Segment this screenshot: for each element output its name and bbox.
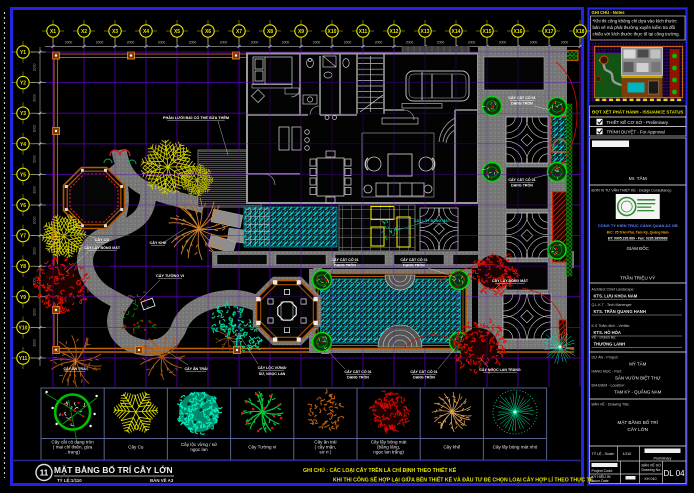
svg-text:Issue Date: Issue Date — [592, 479, 609, 483]
svg-text:CÂY TƯỜNG VI: CÂY TƯỜNG VI — [156, 273, 184, 278]
svg-text:KTS. TRẦN QUANG HANH: KTS. TRẦN QUANG HANH — [594, 309, 646, 314]
svg-text:GIÁM ĐỐC: GIÁM ĐỐC — [627, 246, 649, 251]
svg-text:2000: 2000 — [33, 308, 37, 316]
svg-text:X14: X14 — [452, 29, 461, 35]
svg-text:X15: X15 — [483, 29, 492, 35]
svg-text:Cây Tường vi: Cây Tường vi — [248, 445, 276, 450]
svg-text:CÂY LẤY BÓNG MÁT: CÂY LẤY BÓNG MÁT — [414, 218, 451, 223]
svg-text:2000: 2000 — [499, 41, 507, 45]
svg-text:(bằng lăng,: (bằng lăng, — [377, 444, 400, 450]
svg-text:ngọc lan: ngọc lan — [190, 447, 208, 452]
svg-text:X1: X1 — [50, 29, 56, 35]
svg-text:X8: X8 — [267, 29, 273, 35]
svg-text:TRÌNH DUYỆT - For Approval: TRÌNH DUYỆT - For Approval — [607, 130, 665, 135]
svg-text:2000: 2000 — [33, 94, 37, 102]
svg-text:TRẦN TRIỆU VỸ: TRẦN TRIỆU VỸ — [620, 274, 655, 281]
svg-text:, trang): , trang) — [65, 450, 80, 455]
svg-text:Y4: Y4 — [20, 142, 26, 148]
svg-text:SÂN VƯỜN BIỆT THỰ: SÂN VƯỜN BIỆT THỰ — [615, 376, 661, 381]
svg-text:Y9: Y9 — [20, 295, 26, 301]
svg-text:2000: 2000 — [33, 247, 37, 255]
svg-text:2000: 2000 — [158, 41, 166, 45]
svg-text:2000: 2000 — [344, 41, 352, 45]
svg-text:CÂY LẤY BÓNG MÁT: CÂY LẤY BÓNG MÁT — [492, 278, 529, 283]
svg-text:X11: X11 — [359, 29, 368, 35]
svg-text:VẼ - Drawn By:: VẼ - Drawn By: — [592, 335, 617, 340]
svg-text:CÂY CẮT CỎ 01: CÂY CẮT CỎ 01 — [400, 257, 427, 262]
svg-text:HẠNG MỤC - Part:: HẠNG MỤC - Part: — [592, 370, 622, 374]
svg-text:Cây khế: Cây khế — [443, 445, 460, 450]
svg-text:X18: X18 — [576, 29, 585, 35]
svg-text:X7: X7 — [236, 29, 242, 35]
svg-text:KHI THI CÔNG SẼ HỢP LẠI GIỮA B: KHI THI CÔNG SẼ HỢP LẠI GIỮA BÊN THIẾT K… — [333, 476, 594, 484]
svg-text:THƯƠNG LANH: THƯƠNG LANH — [594, 342, 626, 347]
svg-text:CÂY ĂN TRÁI: CÂY ĂN TRÁI — [184, 366, 207, 371]
svg-text:X2: X2 — [81, 29, 87, 35]
svg-text:2000: 2000 — [96, 41, 104, 45]
svg-text:2000: 2000 — [33, 186, 37, 194]
svg-text:TỶ LỆ - Scale:: TỶ LỆ - Scale: — [592, 451, 615, 456]
svg-text:DẠNG TRÒN: DẠNG TRÒN — [511, 183, 533, 188]
svg-text:ĐỢT XÉT PHÁT HÀNH - ISSUANCE S: ĐỢT XÉT PHÁT HÀNH - ISSUANCE STATUS — [592, 110, 683, 115]
svg-text:Y1: Y1 — [20, 50, 26, 56]
svg-text:2000: 2000 — [33, 216, 37, 224]
svg-text:2000: 2000 — [437, 41, 445, 45]
svg-text:Cây cắt cỏ dạng tròn: Cây cắt cỏ dạng tròn — [51, 438, 94, 444]
svg-text:CÂY CỌ: CÂY CỌ — [95, 237, 110, 242]
svg-text:GHI CHÚ - Notes: GHI CHÚ - Notes — [592, 10, 626, 15]
svg-text:Architect Chief Landscape:: Architect Chief Landscape: — [592, 288, 635, 292]
svg-text:2000: 2000 — [33, 155, 37, 163]
svg-text:2000: 2000 — [189, 41, 197, 45]
svg-text:X3: X3 — [112, 29, 118, 35]
svg-text:ĐT: 0905.235.689 - Fax: 0235.3: ĐT: 0905.235.689 - Fax: 0235.3859689 — [608, 237, 668, 241]
svg-text:DẠNG TRÒN: DẠNG TRÒN — [334, 263, 356, 268]
svg-text:X6: X6 — [205, 29, 211, 35]
svg-text:Project Code:: Project Code: — [592, 469, 614, 473]
svg-text:SỨ, NGỌC LAN: SỨ, NGỌC LAN — [259, 371, 286, 376]
svg-text:KTS. LƯU KHOA NAM: KTS. LƯU KHOA NAM — [594, 294, 638, 299]
svg-text:2000: 2000 — [220, 41, 228, 45]
svg-text:CÂY LỘC VỪNG/: CÂY LỘC VỪNG/ — [258, 365, 287, 370]
svg-text:MẶT BẰNG BỐ TRÍ CÂY LỚN: MẶT BẰNG BỐ TRÍ CÂY LỚN — [54, 464, 173, 475]
svg-text:Mr. TÂM: Mr. TÂM — [629, 175, 647, 182]
svg-text:X10: X10 — [328, 29, 337, 35]
svg-text:Cây lấy bóng mát nhỏ: Cây lấy bóng mát nhỏ — [493, 444, 538, 450]
svg-text:BẢN VẼ SỐ: BẢN VẼ SỐ — [642, 463, 662, 468]
svg-text:2000: 2000 — [406, 41, 414, 45]
svg-text:DẠNG TRÒN: DẠNG TRÒN — [347, 375, 369, 380]
svg-text:KTS. HỒ HÒA: KTS. HỒ HÒA — [594, 330, 621, 335]
svg-text:Đ/C: 25 Trần Phú, Tam Kỳ, Quản: Đ/C: 25 Trần Phú, Tam Kỳ, Quảng Nam — [607, 231, 669, 235]
svg-text:chiếu với kích thước thực tế t: chiếu với kích thước thực tế tại công tr… — [593, 32, 680, 37]
svg-text:2000: 2000 — [561, 41, 569, 45]
svg-text:KH 010: KH 010 — [645, 477, 657, 481]
svg-text:Cây Cọ: Cây Cọ — [128, 445, 144, 450]
svg-text:Q.L.K.T - Tech Manenger: Q.L.K.T - Tech Manenger — [592, 303, 633, 307]
svg-text:X4: X4 — [143, 29, 149, 35]
svg-text:DẠNG TRÒN: DẠNG TRÒN — [511, 101, 533, 106]
svg-text:BẢN VẼ - Drawing Title:: BẢN VẼ - Drawing Title: — [592, 402, 630, 407]
svg-text:2000: 2000 — [33, 63, 37, 71]
svg-text:2000: 2000 — [127, 41, 135, 45]
svg-text:TAM KỲ - QUẢNG NAM: TAM KỲ - QUẢNG NAM — [614, 390, 661, 395]
svg-text:X16: X16 — [514, 29, 523, 35]
svg-text:2000: 2000 — [65, 41, 73, 45]
svg-text:Y6: Y6 — [20, 203, 26, 209]
svg-text:PHẦN LƯỚI B40 CÓ THỂ SỬA THÊM: PHẦN LƯỚI B40 CÓ THỂ SỬA THÊM — [163, 115, 229, 120]
svg-text:*Khi thi công không chỉ dựa và: *Khi thi công không chỉ dựa vào kích thư… — [593, 19, 678, 24]
svg-text:DL 04: DL 04 — [663, 469, 685, 478]
svg-text:X13: X13 — [421, 29, 430, 35]
svg-text:THIẾT KẾ CƠ SỞ - Preliminary: THIẾT KẾ CƠ SỞ - Preliminary — [607, 120, 669, 125]
svg-text:X9: X9 — [298, 29, 304, 35]
svg-text:Preliminary: Preliminary — [654, 457, 672, 461]
svg-text:ĐƠN VỊ TƯ VẤN THIẾT KẾ - Desig: ĐƠN VỊ TƯ VẤN THIẾT KẾ - Design Consulta… — [592, 188, 672, 193]
svg-text:Drawing No.: Drawing No. — [642, 468, 662, 472]
svg-text:2000: 2000 — [375, 41, 383, 45]
svg-text:bản vẽ mà phải thường xuyên ki: bản vẽ mà phải thường xuyên kiểm tra đối — [593, 25, 675, 30]
svg-text:2000: 2000 — [468, 41, 476, 45]
svg-text:DỰ ÁN - Project:: DỰ ÁN - Project: — [592, 356, 619, 360]
svg-text:Y3: Y3 — [20, 111, 26, 117]
svg-text:MẶT BẰNG BỐ TRÍ: MẶT BẰNG BỐ TRÍ — [618, 418, 659, 425]
svg-text:CÂY CẮT CỎ 01: CÂY CẮT CỎ 01 — [410, 369, 437, 374]
svg-text:Y8: Y8 — [20, 264, 26, 270]
svg-text:CÂY CẮT CỎ 01: CÂY CẮT CỎ 01 — [508, 177, 535, 182]
svg-text:CÂY NGỌC LAN TRẮNG: CÂY NGỌC LAN TRẮNG — [479, 367, 521, 372]
svg-text:2000: 2000 — [33, 339, 37, 347]
svg-text:CÂY KHẾ: CÂY KHẾ — [149, 240, 166, 245]
svg-text:CÂY CẮT CỎ 01: CÂY CẮT CỎ 01 — [331, 257, 358, 262]
svg-text:CÔNG TY KIẾN TRÚC CẢNH QUAN AZ: CÔNG TY KIẾN TRÚC CẢNH QUAN AZ GB — [598, 223, 678, 228]
svg-text:11: 11 — [40, 469, 49, 478]
svg-text:X5: X5 — [174, 29, 180, 35]
svg-text:Y10: Y10 — [19, 325, 28, 331]
svg-text:K.S Thẩm định - Verifier: K.S Thẩm định - Verifier — [592, 324, 631, 328]
svg-text:BẢN VẼ A3: BẢN VẼ A3 — [150, 478, 174, 483]
svg-text:2000: 2000 — [282, 41, 290, 45]
svg-text:2000: 2000 — [530, 41, 538, 45]
svg-text:2000: 2000 — [251, 41, 259, 45]
svg-text:DẠNG TRÒN: DẠNG TRÒN — [413, 375, 435, 380]
svg-text:X12: X12 — [390, 29, 399, 35]
svg-text:GHI CHÚ : CÁC LOẠI CÂY TRÊN LÀ: GHI CHÚ : CÁC LOẠI CÂY TRÊN LÀ CHỈ ĐỊNH … — [303, 466, 457, 474]
svg-text:Y11: Y11 — [19, 356, 28, 362]
svg-text:2000: 2000 — [33, 125, 37, 133]
svg-text:X17: X17 — [545, 29, 554, 35]
svg-text:sơ ri ): sơ ri ) — [319, 450, 331, 455]
svg-text:Y5: Y5 — [20, 172, 26, 178]
svg-text:2000: 2000 — [313, 41, 321, 45]
svg-text:CÂY LỚN: CÂY LỚN — [628, 426, 648, 432]
svg-text:ngọc lan trắng): ngọc lan trắng) — [373, 449, 404, 455]
svg-text:ĐỊA ĐIỂM - Location:: ĐỊA ĐIỂM - Location: — [592, 383, 626, 388]
svg-text:CÂY ĂN TRÁI: CÂY ĂN TRÁI — [63, 366, 86, 371]
svg-text:( mai chỉ thiên, gừa: ( mai chỉ thiên, gừa — [53, 444, 93, 450]
svg-text:CÂY CẮT CỎ 01: CÂY CẮT CỎ 01 — [344, 369, 371, 374]
svg-text:MỸ TÂM: MỸ TÂM — [629, 362, 646, 367]
svg-text:Y2: Y2 — [20, 81, 26, 87]
svg-text:TỶ LỆ:1/110: TỶ LỆ:1/110 — [57, 478, 82, 483]
svg-text:Y7: Y7 — [20, 234, 26, 240]
svg-text:1/110: 1/110 — [623, 452, 632, 456]
svg-text:CÂY CẮT CỎ 01: CÂY CẮT CỎ 01 — [508, 95, 535, 100]
svg-text:DẠNG TRÒN: DẠNG TRÒN — [403, 263, 425, 268]
